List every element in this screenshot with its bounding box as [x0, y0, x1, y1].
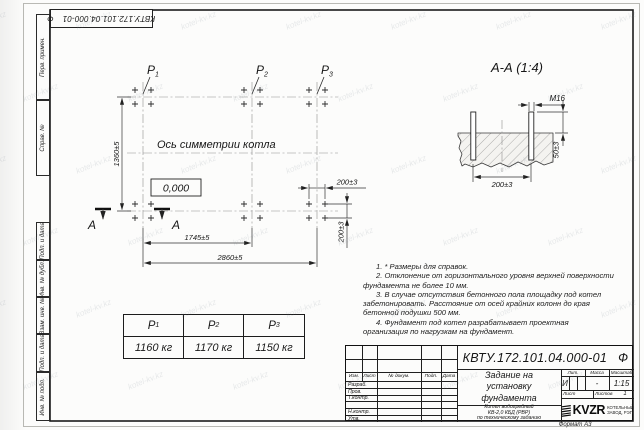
loads-table: P1 P2 P3 1160 кг 1170 кг 1150 кг: [123, 314, 305, 359]
margin-label: Инв. № дубл.: [40, 260, 46, 297]
margin-cell-inv-dubl: Инв. № дубл.: [36, 260, 50, 297]
sheet-label: Лист: [561, 390, 593, 398]
point-label-p3: P3: [321, 63, 333, 79]
product-description: Котел водогрейный КВ-2,0 КБД (РВР) по те…: [457, 405, 561, 422]
margin-cell-vzam-inv: Взам. инв. №: [36, 297, 50, 334]
bolt-thread-dim: [518, 102, 565, 111]
symmetry-axis-label: Ось симметрии котла: [157, 139, 276, 151]
section-title: А-А (1:4): [490, 60, 543, 75]
doc-title-line: Задание на: [485, 370, 533, 382]
logo-text: KVZR: [573, 403, 605, 417]
dim-p1-p2-label: 1745±5: [185, 233, 211, 242]
margin-cell-sprav: Справ. №: [36, 100, 50, 176]
logo-caption: КОТЕЛЬНЫЙ ЗАВОД, РЭП: [607, 405, 634, 415]
elevation-value: 0,000: [163, 183, 189, 195]
sheets-label: Листов: [593, 390, 617, 398]
plan-view: P1 P2 P3 Ось симметрии котла 0,000: [87, 63, 366, 267]
col-dokum: № докум.: [377, 372, 421, 381]
anchor-bolt-left: [471, 112, 476, 160]
top-stamp-text: КВТУ.172.101.04.000-01Ф: [47, 14, 155, 23]
margin-cell-inv-podl: Инв. № подл.: [36, 372, 50, 421]
point-label-p2: P2: [256, 63, 268, 79]
technical-notes: 1. * Размеры для справок. 2. Отклонение …: [363, 262, 615, 336]
lit-label: Лит.: [561, 369, 585, 376]
col-data: Дата: [441, 372, 457, 381]
section-view: А-А (1:4) М16 50±3: [458, 60, 568, 189]
loads-header-p2: P2: [184, 315, 244, 337]
margin-label: Подп. и дата: [40, 222, 46, 260]
spring-icon: [561, 403, 572, 418]
mass-label: Масса: [585, 369, 609, 376]
dim-total-label: 2860±5: [217, 253, 244, 262]
doc-number: КВТУ.172.101.04.000-01: [463, 351, 608, 365]
drawing-sheet: kotel-kv.kzkotel-kv.kzkotel-kv.kzkotel-k…: [0, 0, 644, 430]
scale-value: 1:15: [609, 376, 634, 390]
doc-title: Задание на установку фундамента: [457, 369, 561, 405]
title-block: Изм. Лист № докум. Подп. Дата Разраб. Пр…: [345, 345, 633, 421]
lit-value: И: [561, 376, 569, 390]
point-leaders: [143, 77, 324, 94]
sheets-value: 1: [617, 390, 633, 398]
col-podp: Подп.: [421, 372, 441, 381]
loads-header-p1: P1: [124, 315, 184, 337]
section-letter-left: А: [87, 218, 96, 232]
loads-value-p1: 1160 кг: [124, 337, 184, 358]
margin-cell-podp-data-2: Подп. и дата: [36, 334, 50, 372]
section-cut-marks: А А: [87, 209, 180, 232]
load-header-base: P: [268, 320, 276, 332]
col-izm: Изм.: [346, 372, 362, 381]
protrusion-label: 50±3: [552, 141, 561, 158]
scale-label: Масштаб: [609, 369, 634, 376]
margin-label: Справ. №: [40, 124, 46, 151]
doc-title-line: установку: [487, 381, 532, 393]
margin-cell-perv-primen: Перв. примен.: [36, 14, 50, 100]
mass-value: -: [585, 376, 609, 390]
format-label: Формат А3: [520, 422, 630, 428]
load-header-sub: 3: [276, 322, 280, 329]
row-utv: Утв.: [346, 415, 377, 422]
note-item: 2. Отклонение от горизонтального уровня …: [363, 271, 615, 290]
dim-height-label: 1360±5: [112, 141, 121, 167]
section-letter-right: А: [171, 218, 180, 232]
point-label-p1: P1: [147, 63, 159, 79]
row-nkontr: Н.контр.: [346, 408, 377, 415]
margin-cell-podp-data-1: Подп. и дата: [36, 222, 50, 260]
load-header-base: P: [148, 320, 156, 332]
title-doc-number: КВТУ.172.101.04.000-01Ф: [457, 346, 634, 369]
margin-label: Подп. и дата: [40, 334, 46, 372]
anchor-bolt-right: [529, 112, 534, 160]
col-list: Лист: [362, 372, 377, 381]
loads-value-p2: 1170 кг: [184, 337, 244, 358]
row-razrab: Разраб.: [346, 381, 377, 388]
anchor-bolt-marks: [132, 87, 328, 221]
row-prov: Пров.: [346, 388, 377, 395]
load-header-sub: 2: [215, 322, 219, 329]
load-header-sub: 1: [155, 322, 159, 329]
spacing-label: 200±3: [491, 180, 514, 189]
note-item: 3. В случае отсутствия бетонного пола пл…: [363, 290, 615, 318]
dim-bolt-x-label: 200±3: [336, 178, 359, 187]
dim-bolt-y-label: 200±3: [337, 221, 346, 244]
note-item: 1. * Размеры для справок.: [363, 262, 615, 271]
company-logo: KVZR КОТЕЛЬНЫЙ ЗАВОД, РЭП: [561, 398, 634, 422]
doc-suffix: Ф: [618, 351, 628, 365]
doc-number: КВТУ.172.101.04.000-01: [63, 14, 156, 23]
note-item: 4. Фундамент под котел разрабатывает про…: [363, 318, 615, 337]
loads-header-p3: P3: [244, 315, 304, 337]
doc-title-line: фундамента: [481, 393, 536, 405]
logo-caption-line: ЗАВОД, РЭП: [607, 410, 633, 415]
margin-label: Инв. № подл.: [40, 378, 46, 415]
margin-label: Перв. примен.: [40, 37, 46, 77]
row-empty: [346, 401, 377, 408]
margin-label: Взам. инв. №: [40, 297, 46, 334]
top-stamp-box: КВТУ.172.101.04.000-01Ф: [50, 9, 153, 28]
loads-value-p3: 1150 кг: [244, 337, 304, 358]
